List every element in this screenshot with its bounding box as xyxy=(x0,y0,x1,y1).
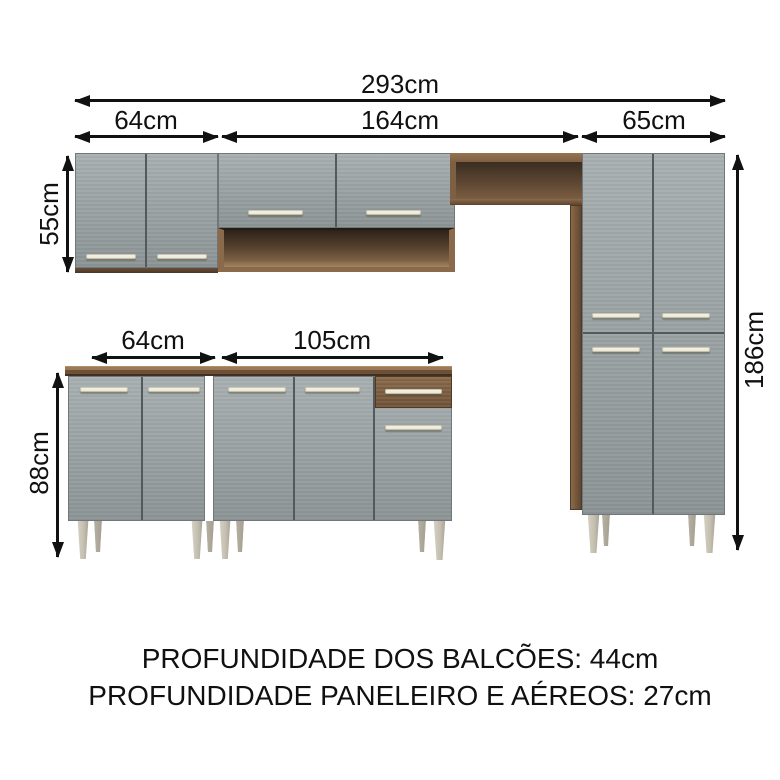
dim-arrow-upper-height xyxy=(66,156,69,272)
cabinet-leg xyxy=(417,521,427,552)
tall-cabinet-side-panel xyxy=(570,205,582,510)
door-handle xyxy=(86,254,136,259)
door-handle xyxy=(228,387,286,392)
door-handle xyxy=(385,425,442,430)
dim-arrow-upper-middle xyxy=(222,135,578,138)
door-handle xyxy=(366,210,421,215)
door-handle xyxy=(662,347,710,352)
base-cabinet-left xyxy=(68,376,205,521)
dim-label-upper-right: 65cm xyxy=(622,107,686,133)
door-handle xyxy=(592,347,640,352)
cabinet-leg xyxy=(218,521,232,559)
connecting-shelf-interior xyxy=(456,162,582,199)
base-cabinet-middle xyxy=(213,376,452,521)
wall-cabinet-middle xyxy=(218,153,455,272)
cabinet-leg xyxy=(687,515,697,546)
dim-label-lower-left: 64cm xyxy=(121,327,185,353)
connecting-shelf-bottom xyxy=(450,199,582,205)
connecting-shelf xyxy=(450,153,582,205)
cabinet-leg xyxy=(190,521,204,559)
open-shelf-niche xyxy=(218,228,455,272)
depth-note-balcoes: PROFUNDIDADE DOS BALCÕES: 44cm xyxy=(142,643,659,675)
door-handle xyxy=(248,210,303,215)
cabinet-leg xyxy=(702,515,717,553)
dim-arrow-total-width xyxy=(75,99,725,102)
connecting-shelf-top xyxy=(450,153,582,162)
cabinet-leg xyxy=(76,521,90,559)
dim-label-upper-left: 64cm xyxy=(114,107,178,133)
door-handle xyxy=(148,387,200,392)
door-seam xyxy=(141,377,143,520)
dim-label-total-width: 293cm xyxy=(361,71,439,97)
dim-label-upper-middle: 164cm xyxy=(361,107,439,133)
door-handle xyxy=(157,254,207,259)
door-handle xyxy=(592,313,640,318)
door-handle xyxy=(662,313,710,318)
cabinet-leg xyxy=(235,521,245,552)
dim-arrow-lower-height xyxy=(56,373,59,557)
dim-label-lower-middle: 105cm xyxy=(293,327,371,353)
door-seam xyxy=(335,154,337,227)
cabinet-leg xyxy=(601,515,611,546)
door-seam xyxy=(145,154,147,267)
base-cabinet-left-doors xyxy=(68,376,205,521)
cabinet-leg xyxy=(205,521,215,552)
cabinet-leg xyxy=(586,515,601,553)
dim-label-lower-height: 88cm xyxy=(26,431,52,495)
cabinet-leg xyxy=(93,521,103,552)
door-handle xyxy=(80,387,128,392)
cabinet-bottom-edge xyxy=(75,268,218,273)
wall-cabinet-left xyxy=(75,153,218,273)
countertop-left xyxy=(65,366,215,376)
door-seam xyxy=(293,377,295,520)
depth-note-paneleiro: PROFUNDIDADE PANELEIRO E AÉREOS: 27cm xyxy=(88,680,711,712)
door-seam xyxy=(583,332,724,334)
cabinet-leg xyxy=(432,521,447,560)
countertop-middle xyxy=(212,366,452,376)
dim-arrow-upper-right xyxy=(582,135,725,138)
dim-arrow-lower-middle xyxy=(222,356,443,359)
product-dimension-diagram: 293cm 64cm 164cm 65cm 55cm 64cm 105cm 88… xyxy=(0,0,780,780)
dim-label-upper-height: 55cm xyxy=(36,182,62,246)
drawer-handle xyxy=(385,389,442,394)
dim-arrow-tall-height xyxy=(736,155,739,550)
door-seam xyxy=(652,154,654,514)
dim-arrow-lower-left xyxy=(92,356,215,359)
door-handle xyxy=(305,387,360,392)
dim-arrow-upper-left xyxy=(75,135,218,138)
dim-label-tall-height: 186cm xyxy=(741,311,767,389)
tall-cabinet xyxy=(582,153,725,515)
